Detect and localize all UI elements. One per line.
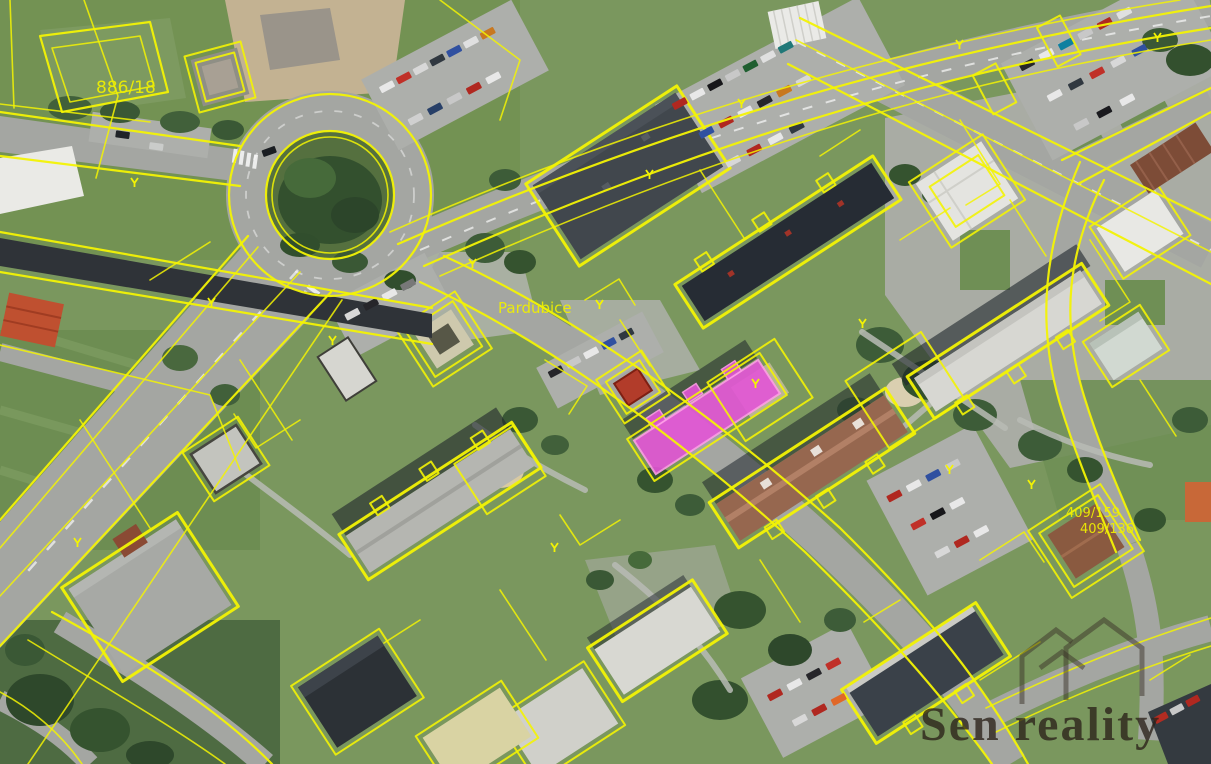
city-label: Pardubice [498, 299, 572, 317]
watermark-brand: Sen reality [920, 698, 1161, 751]
aerial-cadastral-map[interactable]: Pardubice 886/18 409/159 409/136 Sen rea… [0, 0, 1211, 764]
parcel-label-886-18: 886/18 [96, 78, 156, 98]
building-orange-right-edge [1185, 482, 1211, 522]
parcel-label-409-136: 409/136 [1080, 522, 1134, 537]
parcel-label-409-159: 409/159 [1066, 506, 1120, 521]
